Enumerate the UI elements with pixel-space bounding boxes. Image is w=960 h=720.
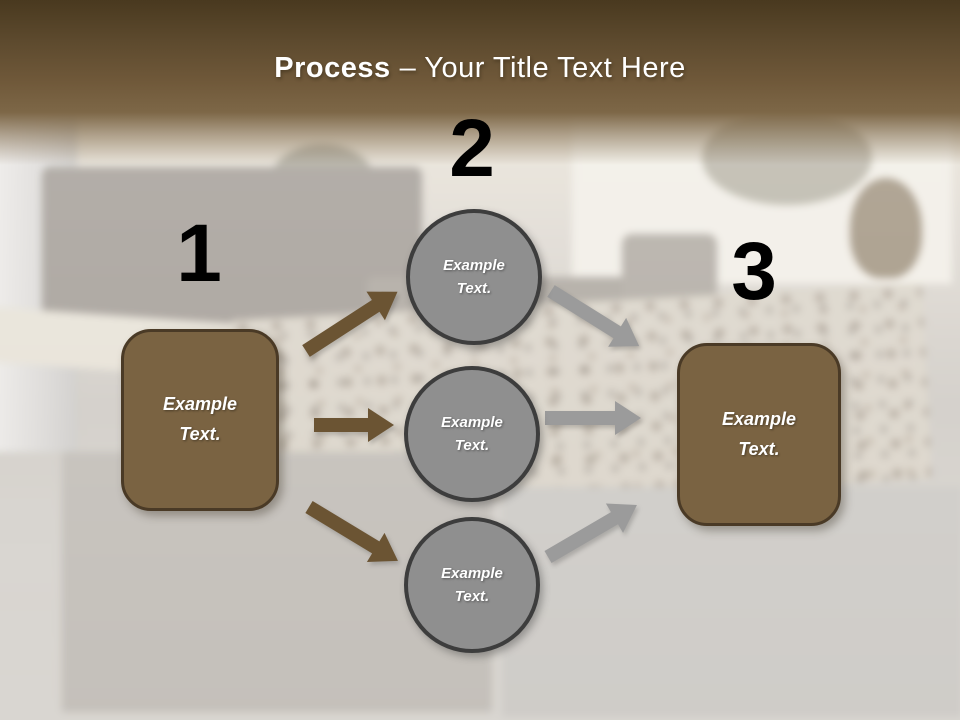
step1-box-label: Example Text.: [163, 390, 237, 449]
slide-title: Process – Your Title Text Here: [0, 52, 960, 85]
step-number-3: 3: [731, 231, 777, 313]
step2-circle-1: Example Text.: [406, 209, 542, 345]
step2-circle-3-label: Example Text.: [441, 562, 503, 609]
title-rest: – Your Title Text Here: [400, 52, 686, 85]
slide-canvas: Process – Your Title Text Here 1 2 3 Exa…: [0, 0, 960, 720]
step-number-2: 2: [449, 108, 495, 190]
title-emphasis: Process: [274, 52, 390, 85]
step2-circle-2: Example Text.: [404, 366, 540, 502]
step-number-1: 1: [176, 213, 222, 295]
step3-box-label: Example Text.: [722, 405, 796, 464]
step1-box: Example Text.: [121, 329, 279, 511]
step2-circle-3: Example Text.: [404, 517, 540, 653]
step3-box: Example Text.: [677, 343, 841, 526]
step2-circle-2-label: Example Text.: [441, 411, 503, 458]
step2-circle-1-label: Example Text.: [443, 254, 505, 301]
